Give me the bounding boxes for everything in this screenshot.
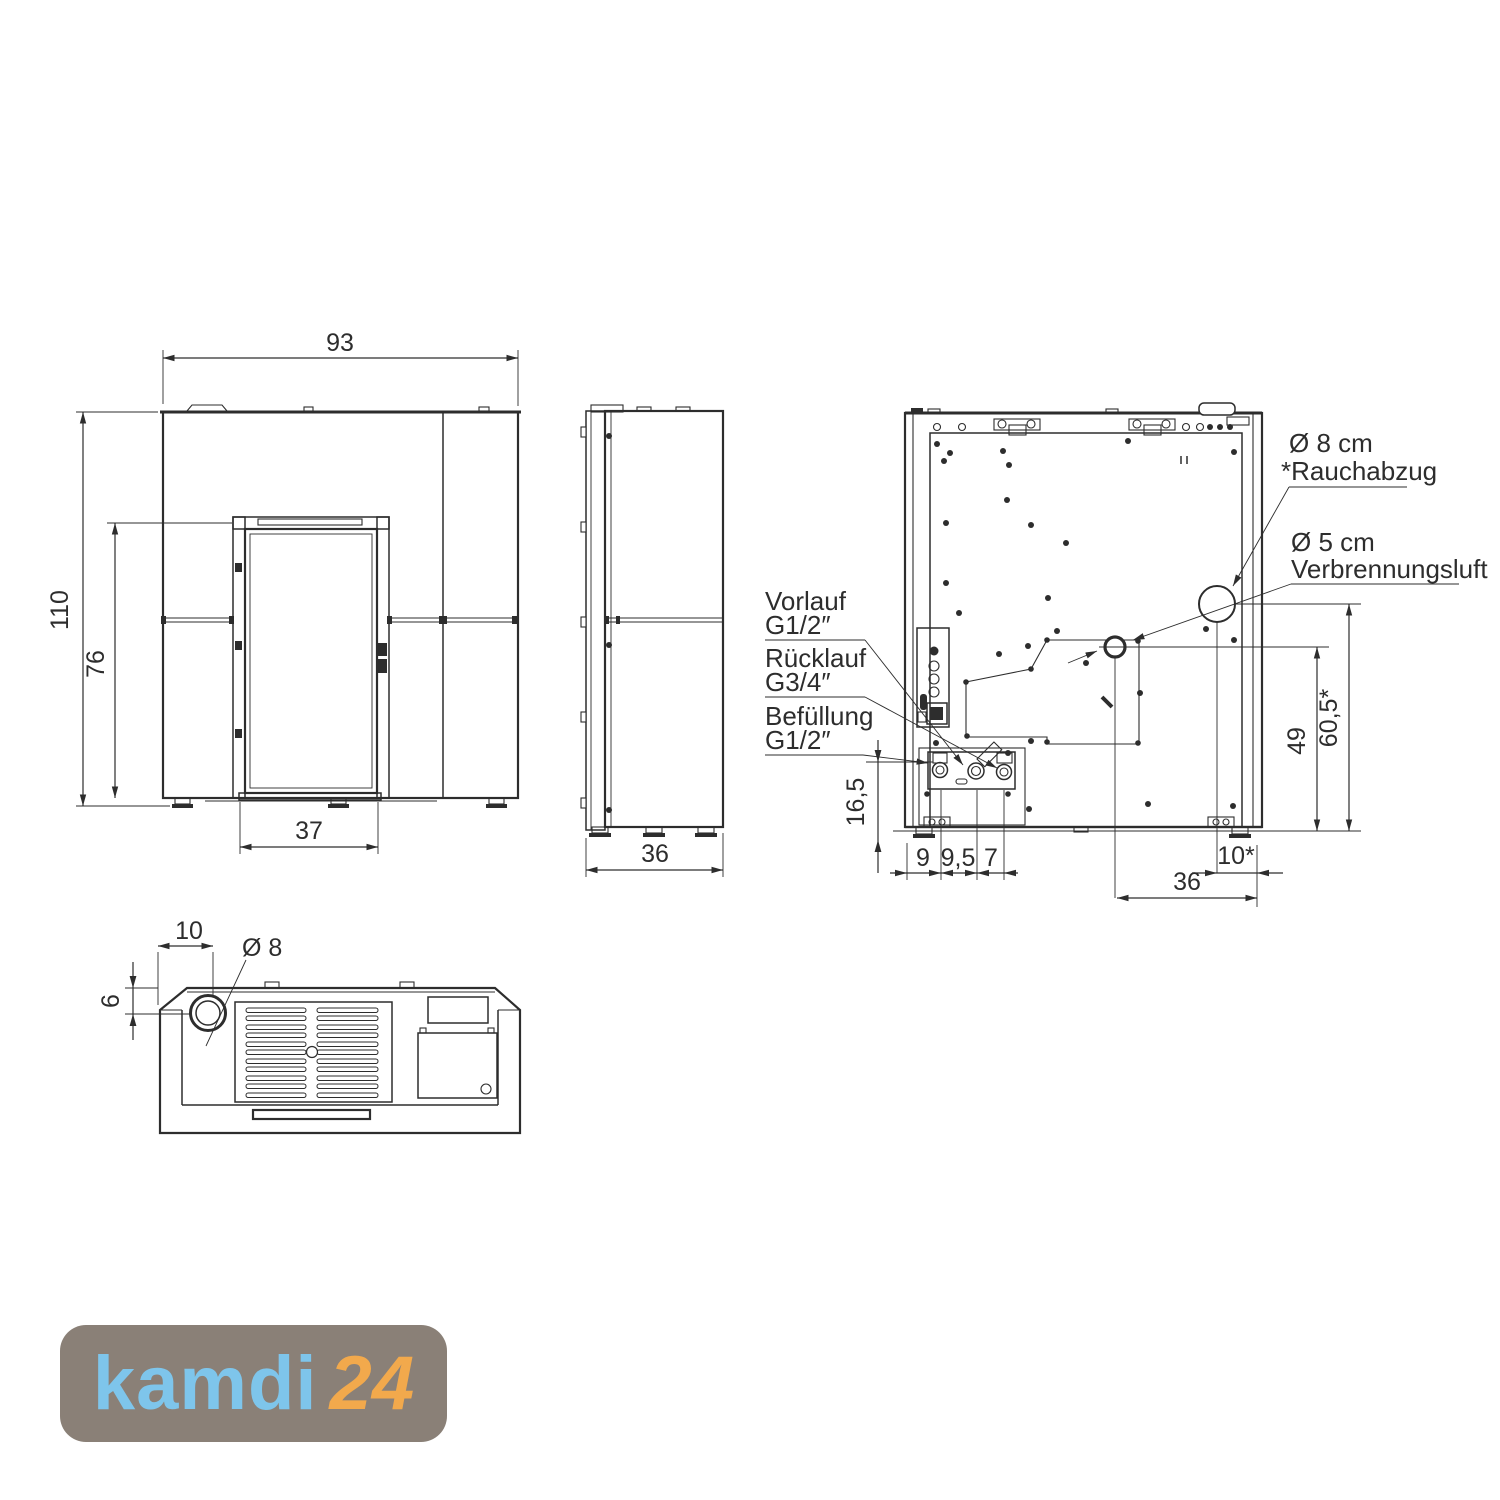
- flue-to-edge-dim: 10*: [1217, 842, 1255, 870]
- flue-height-dim: 60,5*: [1315, 689, 1343, 748]
- top-flue-depth-dim: 6: [97, 994, 125, 1008]
- front-width-dim: 93: [326, 329, 354, 357]
- air-to-edge-dim: 36: [1173, 868, 1201, 896]
- connection-height-dim: 16,5: [842, 778, 870, 827]
- top-flue-offset-dim: 10: [175, 917, 203, 945]
- top-grille: [235, 1002, 392, 1102]
- logo-text-24: 24: [330, 1340, 415, 1427]
- door-handle: [378, 643, 387, 673]
- page: 93 110 76 37: [0, 0, 1500, 1500]
- rear-view: Ø 8 cm *Rauchabzug Ø 5 cm Verbrennungslu…: [765, 403, 1488, 907]
- technical-drawing: 93 110 76 37: [0, 0, 1500, 1500]
- combustion-air-callout: Ø 5 cm Verbrennungsluft: [1068, 527, 1488, 663]
- fill-callout-size: G1/2″: [765, 725, 831, 755]
- return-offset-dim: 9,5: [941, 844, 976, 872]
- flue-callout-diameter: Ø 8 cm: [1289, 428, 1373, 458]
- top-view: 10 Ø 8 6: [97, 917, 520, 1133]
- front-door-width-dim: 37: [295, 817, 323, 845]
- rear-screws: [933, 438, 1237, 812]
- top-hopper-lid: [418, 1028, 497, 1098]
- side-view: 36: [581, 405, 723, 877]
- kamdi24-logo: kamdi 24: [60, 1325, 447, 1442]
- fill-offset-dim: 9: [916, 844, 930, 872]
- front-height-dim: 110: [46, 590, 74, 630]
- side-depth-dim: 36: [641, 840, 669, 868]
- air-callout-name: Verbrennungsluft: [1291, 554, 1488, 584]
- supply-offset-dim: 7: [984, 844, 998, 872]
- return-callout-size: G3/4″: [765, 667, 831, 697]
- air-height-dim: 49: [1283, 727, 1311, 755]
- front-door-height-dim: 76: [82, 650, 110, 678]
- top-flue-pipe: [191, 996, 226, 1031]
- flue-callout-name: *Rauchabzug: [1281, 456, 1437, 486]
- front-view: 93 110 76 37: [46, 329, 521, 854]
- logo-text-kamdi: kamdi: [93, 1340, 318, 1427]
- combustion-air-port: [1099, 637, 1131, 898]
- side-feet: [589, 827, 717, 837]
- supply-callout-size: G1/2″: [765, 610, 831, 640]
- air-callout-diameter: Ø 5 cm: [1291, 527, 1375, 557]
- fill-callout: Befüllung G1/2″: [765, 701, 928, 763]
- top-flue-diameter-dim: Ø 8: [242, 934, 282, 962]
